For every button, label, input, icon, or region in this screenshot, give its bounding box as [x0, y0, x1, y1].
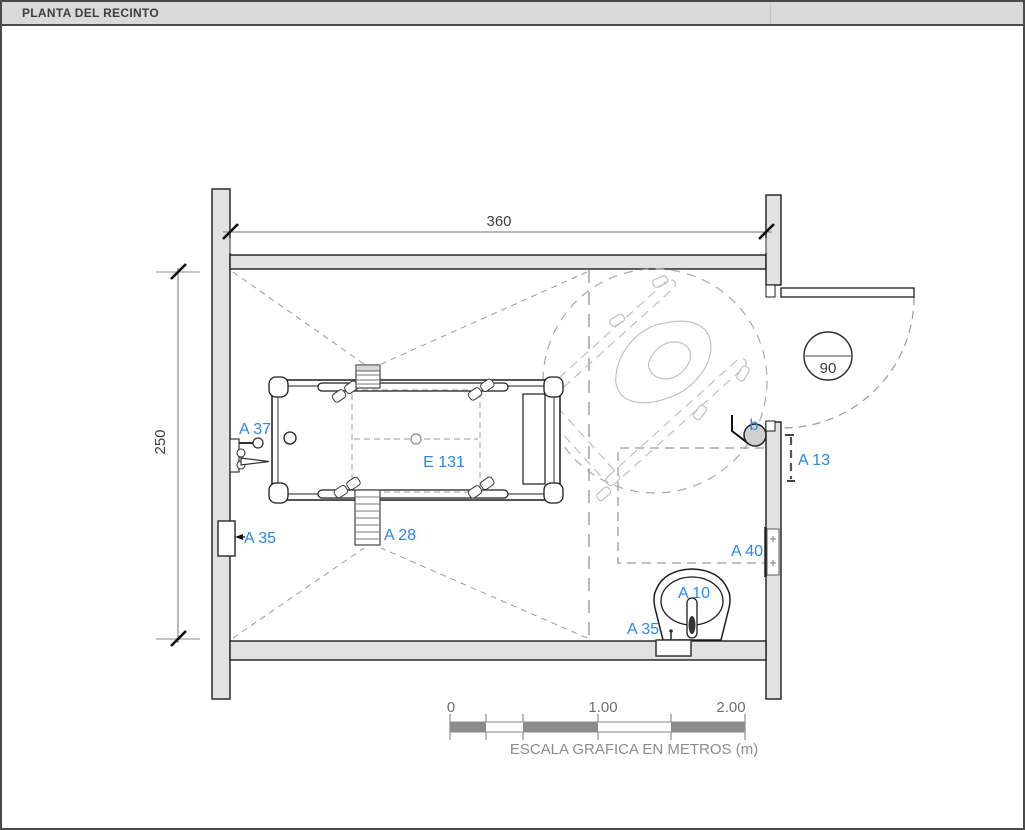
scale-tick-0: 0	[447, 699, 455, 716]
slope-line-tr	[381, 272, 587, 364]
wall-mixer-faucet	[230, 438, 269, 472]
dimension-vertical: 250	[152, 264, 200, 646]
dim-width-label: 360	[486, 213, 511, 230]
label-grab-bar: A 13	[798, 452, 830, 469]
tub-center-point	[411, 434, 421, 444]
scale-bar: 0 1.00 2.00 ESCALA GRAFICA EN METROS (m)	[447, 699, 758, 758]
scale-caption: ESCALA GRAFICA EN METROS (m)	[510, 741, 758, 758]
hoist-sling-outline	[599, 300, 726, 424]
tub-headrest-panel	[523, 394, 545, 484]
bathtub	[269, 377, 563, 503]
step-ladder-bottom	[355, 490, 380, 545]
floor-plan-canvas: 90 360 250	[2, 2, 1025, 830]
scale-tick-2: 2.00	[716, 699, 745, 716]
wall-niche-left	[218, 521, 245, 556]
hoist-seat-outline	[642, 333, 697, 387]
turning-circle	[543, 269, 767, 493]
door-width-label: 90	[820, 360, 837, 377]
title-bar-divider	[770, 2, 771, 24]
slope-line-br	[381, 548, 587, 638]
door: 90	[781, 288, 914, 428]
label-niche-left: A 35	[244, 530, 276, 547]
wall-top	[230, 255, 766, 269]
wall-support-a40	[766, 527, 780, 577]
door-jamb-top	[766, 285, 775, 297]
dim-height-label: 250	[152, 429, 169, 454]
tub-drain	[284, 432, 296, 444]
toilet	[654, 569, 730, 640]
wall-right-upper	[766, 195, 781, 285]
label-niche-bottom: A 35	[627, 621, 659, 638]
scale-tick-1: 1.00	[588, 699, 617, 716]
step-ladder-top	[356, 365, 380, 388]
sheet: PLANTA DEL RECINTO 90	[0, 0, 1025, 830]
dimension-horizontal: 360	[223, 213, 774, 253]
slope-line-tl	[233, 272, 364, 364]
label-hook: b	[750, 417, 759, 434]
door-leaf	[781, 288, 914, 297]
niche-left-arrow	[235, 534, 243, 540]
label-tub: E 131	[423, 454, 465, 471]
grab-bar-a13	[785, 435, 795, 481]
slope-line-bl	[233, 548, 364, 638]
label-wall-support: A 40	[731, 543, 763, 560]
wall-left	[212, 189, 230, 699]
title-bar: PLANTA DEL RECINTO	[2, 2, 1023, 26]
label-toilet: A 10	[678, 585, 710, 602]
label-faucet: A 37	[239, 421, 271, 438]
label-ladder: A 28	[384, 527, 416, 544]
page-title: PLANTA DEL RECINTO	[22, 6, 159, 20]
door-jamb-bottom	[766, 421, 775, 431]
toilet-valve-core	[689, 616, 696, 634]
